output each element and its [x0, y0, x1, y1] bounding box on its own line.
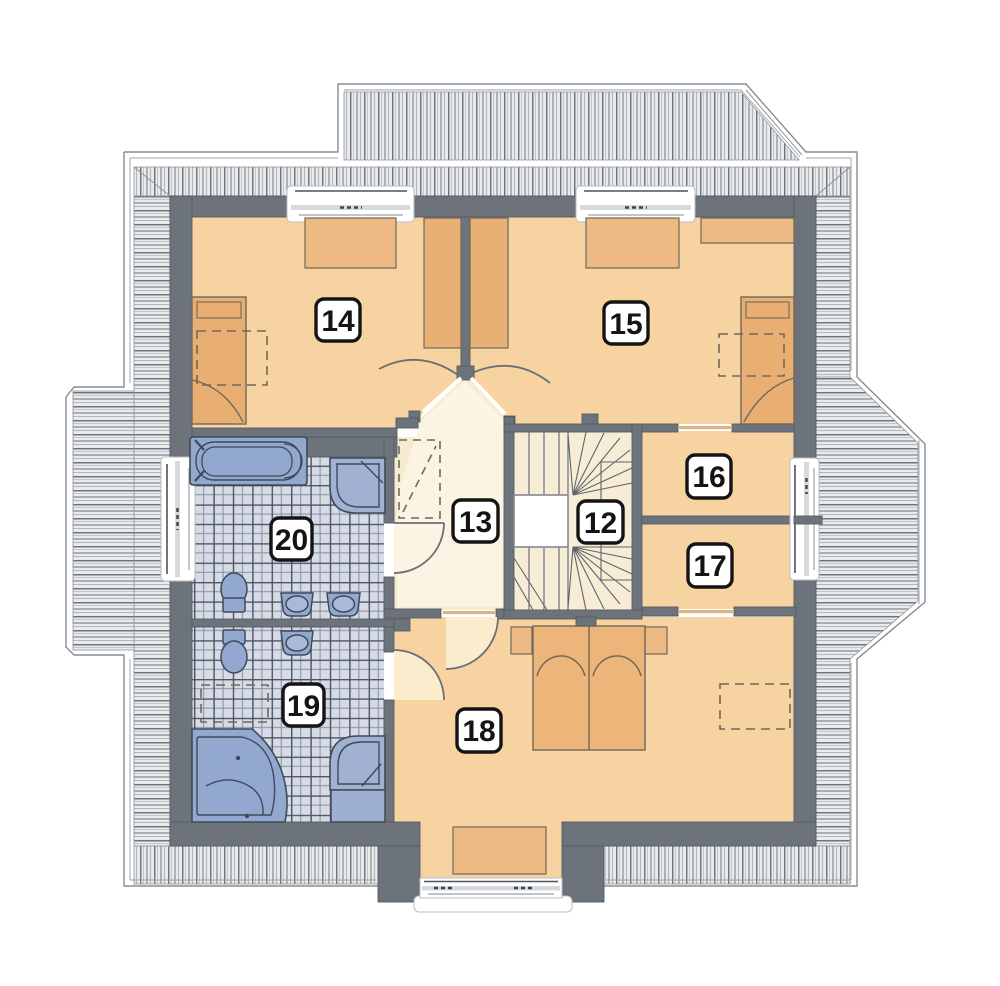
svg-text:15: 15 [609, 308, 642, 341]
svg-text:13: 13 [459, 506, 492, 539]
svg-text:14: 14 [321, 305, 355, 338]
svg-text:12: 12 [584, 507, 617, 540]
svg-text:20: 20 [275, 524, 308, 557]
svg-text:17: 17 [693, 550, 726, 583]
svg-text:18: 18 [462, 715, 495, 748]
svg-text:16: 16 [692, 461, 725, 494]
svg-text:19: 19 [287, 690, 320, 723]
